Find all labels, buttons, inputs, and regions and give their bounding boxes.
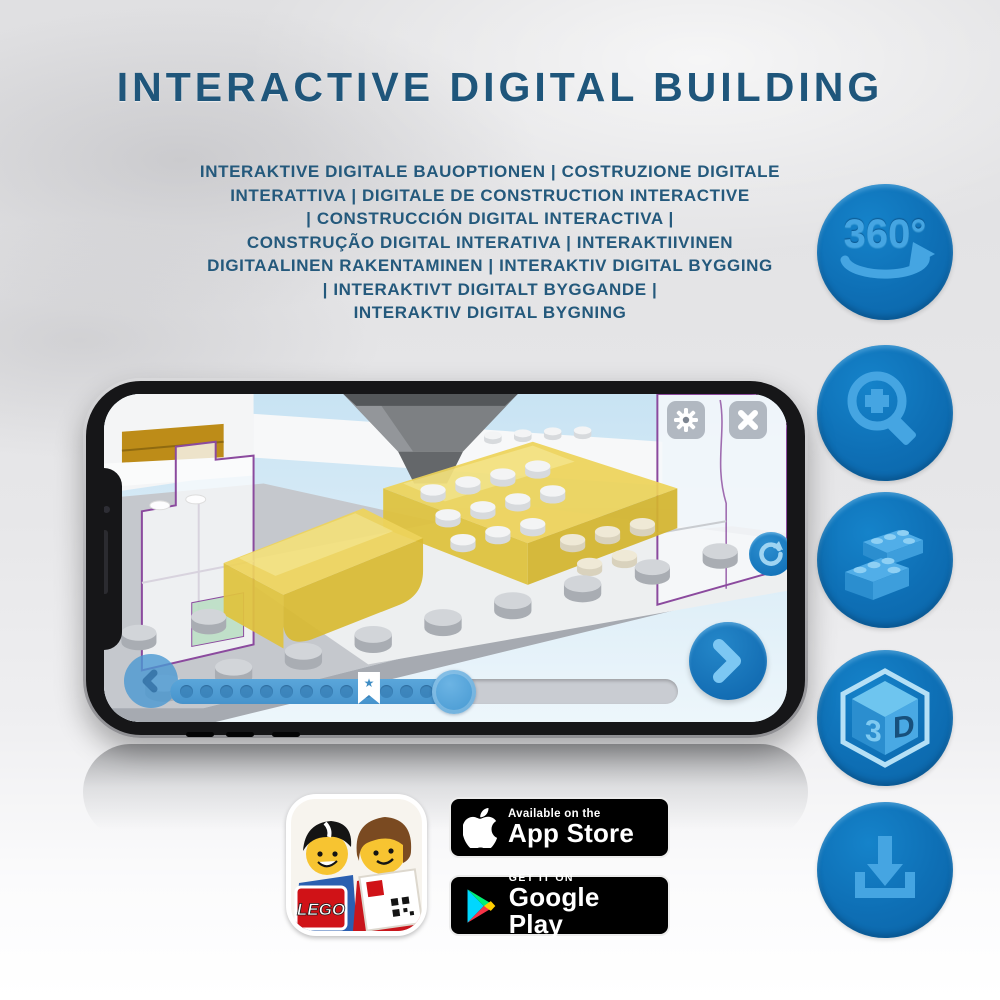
svg-text:3: 3 <box>865 714 882 749</box>
google-play-name: Google Play <box>509 884 656 939</box>
rotate-icon <box>757 540 785 568</box>
promo-page: INTERACTIVE DIGITAL BUILDING INTERAKTIVE… <box>0 0 1000 1000</box>
svg-text:LEGO: LEGO <box>297 900 345 919</box>
close-button[interactable] <box>729 401 767 439</box>
phone-volume-button <box>186 732 214 737</box>
apple-icon <box>463 808 497 848</box>
progress-slider-knob[interactable] <box>432 670 476 714</box>
app-store-name: App Store <box>508 820 634 847</box>
subtitle-line: CONSTRUÇÃO DIGITAL INTERATIVA | INTERAKT… <box>140 231 840 255</box>
chevron-left-icon <box>139 669 163 693</box>
phone-volume-button <box>226 732 254 737</box>
subtitle-line: | CONSTRUCCIÓN DIGITAL INTERACTIVA | <box>140 207 840 231</box>
rotate-360-label: 360° <box>817 212 953 257</box>
rotate-view-button[interactable] <box>749 532 787 576</box>
view-3d-icon: 3 D <box>817 650 953 786</box>
google-play-badge[interactable]: GET IT ON Google Play <box>449 875 670 936</box>
subtitle-line: | INTERAKTIVT DIGITALT BYGGANDE | <box>140 278 840 302</box>
subtitle-line: INTERATTIVA | DIGITALE DE CONSTRUCTION I… <box>140 184 840 208</box>
download-icon <box>817 802 953 938</box>
brick-building-icon <box>817 492 953 628</box>
zoom-in-icon <box>817 345 953 481</box>
smartphone: ★ <box>83 378 808 738</box>
page-title: INTERACTIVE DIGITAL BUILDING <box>0 64 1000 111</box>
svg-text:D: D <box>893 709 915 745</box>
gear-icon <box>673 407 699 433</box>
phone-power-button <box>272 732 300 737</box>
google-play-icon <box>463 886 498 926</box>
lego-app-screen: ★ <box>104 394 787 722</box>
app-store-badge[interactable]: Available on the App Store <box>449 797 670 858</box>
subtitle-line: INTERAKTIVE DIGITALE BAUOPTIONEN | COSTR… <box>140 160 840 184</box>
lego-logo: LEGO <box>296 887 346 929</box>
settings-button[interactable] <box>667 401 705 439</box>
build-progress-bar[interactable]: ★ <box>170 679 678 704</box>
chevron-right-icon <box>707 637 749 685</box>
subtitle-line: INTERAKTIV DIGITAL BYGNING <box>140 301 840 325</box>
next-step-button[interactable] <box>689 622 767 700</box>
instruction-paper <box>359 869 422 930</box>
phone-reflection <box>83 744 808 840</box>
phone-notch <box>104 468 122 650</box>
front-camera <box>104 506 110 513</box>
rotate-360-icon: 360° <box>817 184 953 320</box>
lego-app-icon[interactable]: LEGO <box>286 794 427 936</box>
subtitle-translations: INTERAKTIVE DIGITALE BAUOPTIONEN | COSTR… <box>140 160 840 325</box>
earpiece-speaker <box>104 530 108 594</box>
progress-fill <box>170 679 454 704</box>
close-icon <box>737 409 759 431</box>
previous-step-button[interactable] <box>124 654 178 708</box>
subtitle-line: DIGITAALINEN RAKENTAMINEN | INTERAKTIV D… <box>140 254 840 278</box>
